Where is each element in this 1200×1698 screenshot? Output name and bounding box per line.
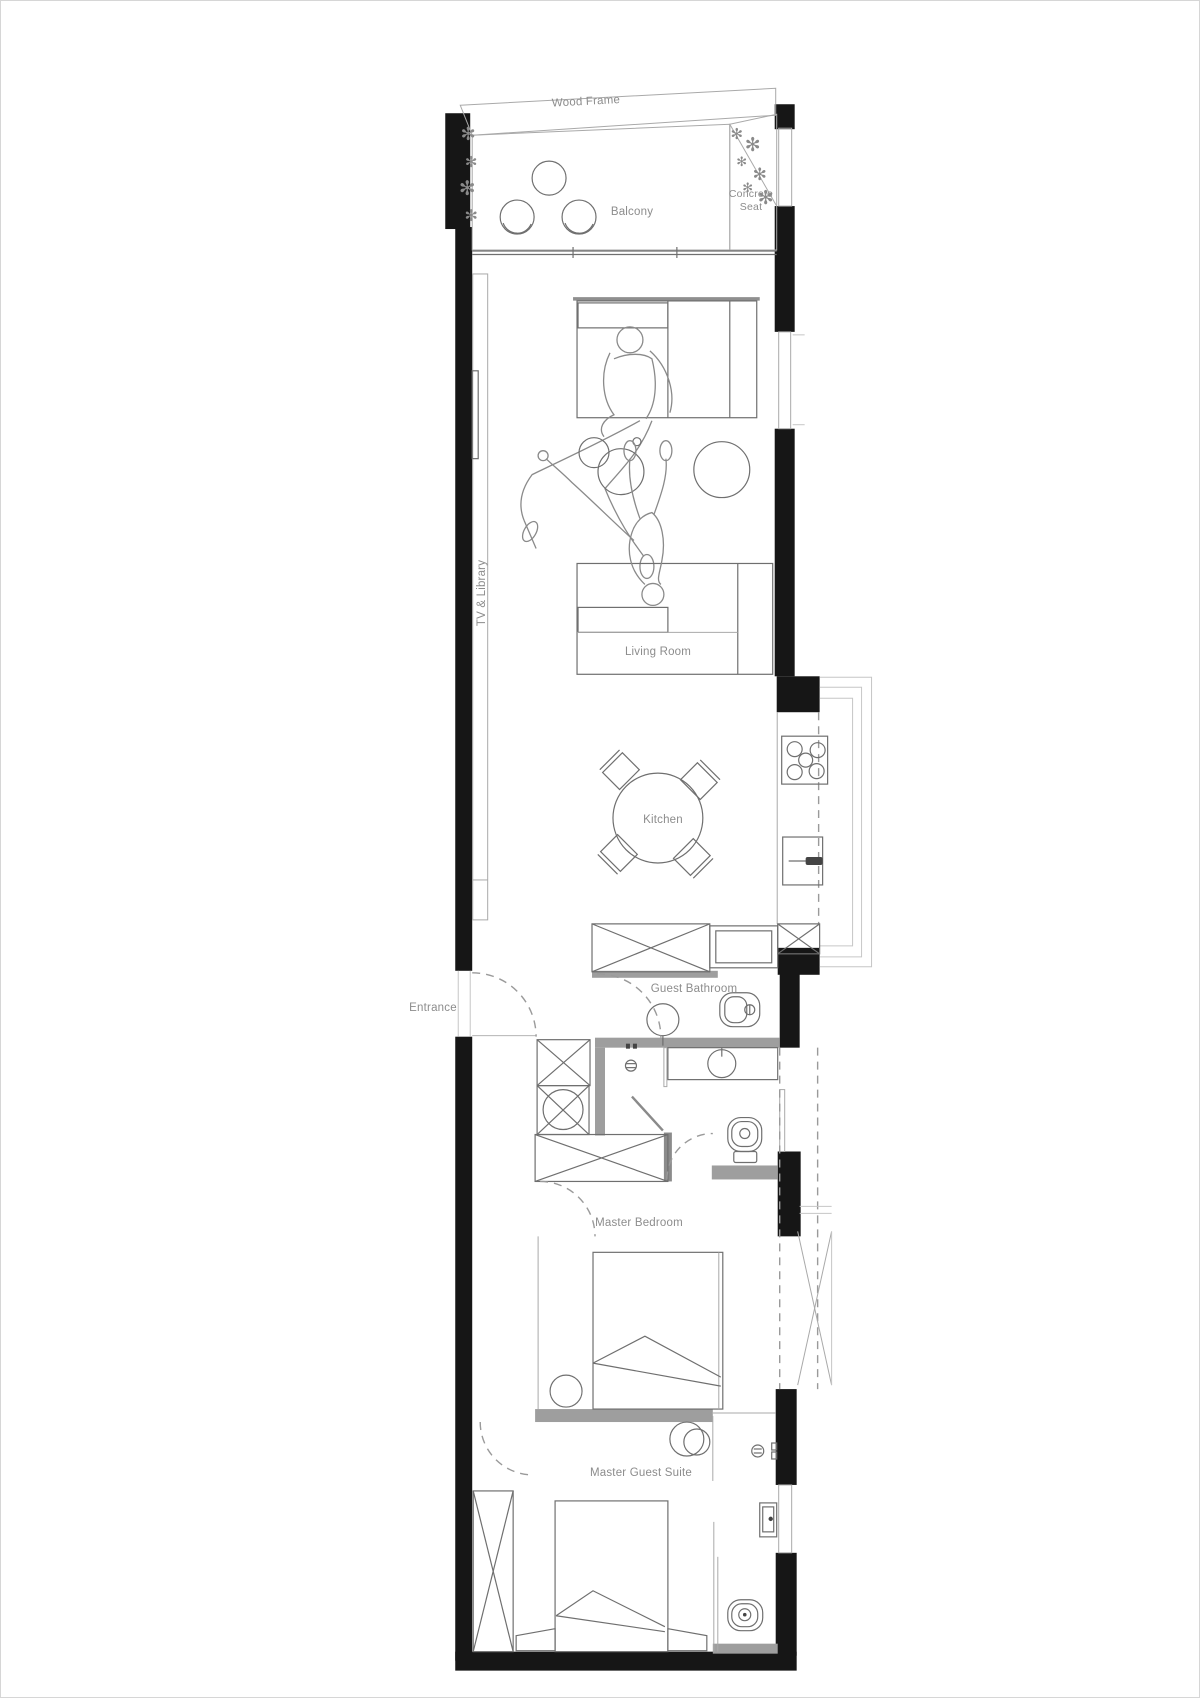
service-ledge [820, 677, 872, 967]
wardrobe [535, 1135, 668, 1182]
cooktop [782, 736, 828, 784]
door-swing-arc [540, 1181, 595, 1236]
balcony-chairs [500, 161, 596, 234]
label-concrete-seat: Concrete Seat [729, 188, 773, 214]
label-entrance: Entrance [409, 1001, 457, 1015]
floor-plan-drawing: ✻ ✻ ✻ ✻ ✻ ✻ ✻ ✻ ✻ ✻ [1, 1, 1199, 1697]
toilet-icon [728, 1118, 762, 1163]
label-master-bedroom: Master Bedroom [595, 1216, 683, 1230]
door-swing-arc [480, 1422, 533, 1475]
door-swing-arc [667, 1134, 713, 1180]
master-bed [538, 1236, 723, 1409]
plant-icon: ✻ [465, 206, 478, 225]
label-concrete-seat-line2: Seat [729, 201, 773, 214]
floor-plan: ✻ ✻ ✻ ✻ ✻ ✻ ✻ ✻ ✻ ✻ [0, 0, 1200, 1698]
entrance-door [458, 971, 536, 1037]
kitchen-sink [783, 837, 823, 885]
label-guest-bathroom: Guest Bathroom [651, 982, 738, 996]
plant-icon: ✻ [736, 155, 747, 170]
person-figure [519, 327, 671, 579]
label-balcony: Balcony [611, 205, 653, 219]
vanity [664, 1048, 778, 1087]
person-figure [538, 441, 672, 606]
suite-partition [714, 1522, 718, 1652]
toilet-icon [728, 1600, 763, 1631]
floor-drain [625, 1044, 636, 1071]
label-master-guest-suite: Master Guest Suite [590, 1466, 692, 1480]
label-living-room: Living Room [625, 645, 691, 659]
tall-wardrobe [473, 1491, 513, 1652]
label-kitchen: Kitchen [643, 813, 683, 827]
window [779, 1485, 792, 1553]
label-tv-library: TV & Library [475, 560, 489, 626]
suite-chair [670, 1422, 710, 1456]
label-concrete-seat-line1: Concrete [729, 188, 773, 201]
exterior-walls [445, 104, 819, 1670]
coffee-tables [579, 438, 750, 498]
plant-icon: ✻ [461, 124, 476, 145]
plant-icon: ✻ [730, 125, 743, 143]
plant-icon: ✻ [745, 134, 761, 156]
ceiling-fixtures [752, 1443, 777, 1459]
shower-door [632, 1097, 663, 1131]
plant-icon: ✻ [465, 153, 478, 171]
plant-icon: ✻ [459, 176, 476, 200]
washer-cabinet [537, 1040, 590, 1135]
kitchen-counter [777, 712, 818, 924]
suite-sink [760, 1503, 777, 1537]
interior-partitions [535, 971, 780, 1654]
plant-icon: ✻ [753, 165, 767, 185]
door-swing-arc [472, 973, 536, 1037]
sofa-upper [573, 299, 760, 418]
guest-bed [516, 1501, 707, 1652]
toilet-icon [720, 993, 760, 1027]
sliding-door [472, 247, 776, 258]
